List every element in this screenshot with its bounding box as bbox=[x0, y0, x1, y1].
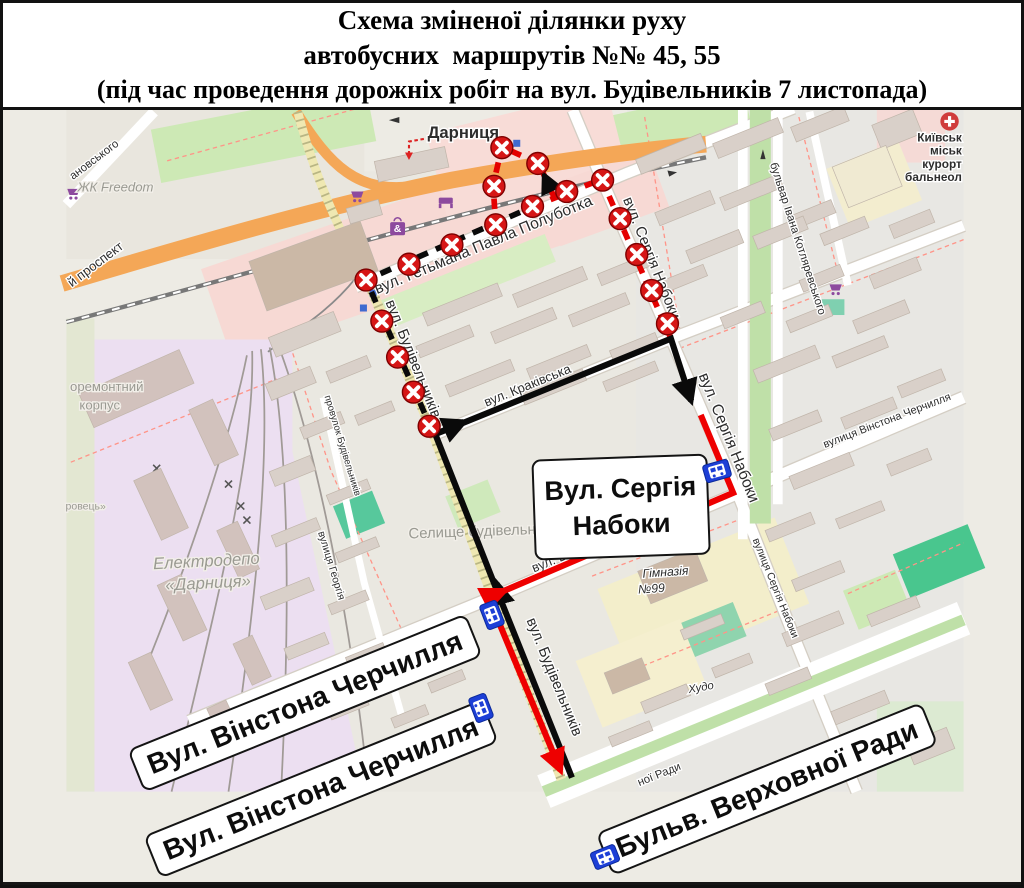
road-closed-x-marker bbox=[527, 152, 549, 174]
street-box-naboky: Вул. Сергія Набоки bbox=[531, 454, 710, 561]
rovets-label: ровець» bbox=[66, 501, 106, 513]
title-line-2: автобусних маршрутів №№ 45, 55 bbox=[303, 40, 720, 72]
hospital-red-cross-icon bbox=[940, 112, 958, 130]
road-closed-x-marker bbox=[522, 195, 544, 217]
road-closed-x-marker bbox=[355, 269, 377, 291]
road-closed-x-marker bbox=[371, 310, 393, 332]
road-closed-x-marker bbox=[387, 346, 409, 368]
zhk-freedom-label: ЖК Freedom bbox=[77, 179, 154, 194]
detour-map: & bbox=[3, 110, 1024, 888]
svg-text:&: & bbox=[394, 223, 402, 235]
road-closed-x-marker bbox=[402, 381, 424, 403]
road-closed-x-marker bbox=[483, 175, 505, 197]
street-box-naboky-line2: Набоки bbox=[545, 504, 698, 546]
title-line-3: (під час проведення дорожніх робіт на ву… bbox=[97, 75, 927, 106]
scheme-page: Схема зміненої ділянки руху автобусних м… bbox=[0, 0, 1024, 888]
road-closed-x-marker bbox=[656, 313, 678, 335]
road-closed-x-marker bbox=[441, 234, 463, 256]
hospital-label-3: курорт bbox=[922, 157, 962, 171]
scheme-title: Схема зміненої ділянки руху автобусних м… bbox=[3, 3, 1021, 110]
hospital-label-4: бальнеол bbox=[905, 170, 962, 184]
road-closed-x-marker bbox=[626, 244, 648, 266]
metro-station-label: Дарниця bbox=[428, 123, 499, 142]
road-closed-x-marker bbox=[556, 181, 578, 203]
gymnasium-number-label: №99 bbox=[637, 581, 665, 597]
road-closed-x-marker bbox=[485, 214, 507, 236]
hospital-label-2: міськ bbox=[930, 144, 962, 158]
title-line-1: Схема зміненої ділянки руху bbox=[338, 5, 686, 37]
repair-shop-label: оремонтний bbox=[70, 379, 143, 394]
hospital-label-1: Київськ bbox=[917, 131, 962, 145]
street-box-naboky-line1: Вул. Сергія bbox=[544, 468, 697, 510]
road-closed-x-marker bbox=[491, 137, 513, 159]
road-closed-x-marker bbox=[418, 415, 440, 437]
road-closed-x-marker bbox=[641, 280, 663, 302]
road-closed-x-marker bbox=[592, 169, 614, 191]
road-closed-x-marker bbox=[398, 253, 420, 275]
repair-shop-label2: корпус bbox=[79, 398, 120, 413]
road-closed-x-marker bbox=[609, 208, 631, 230]
